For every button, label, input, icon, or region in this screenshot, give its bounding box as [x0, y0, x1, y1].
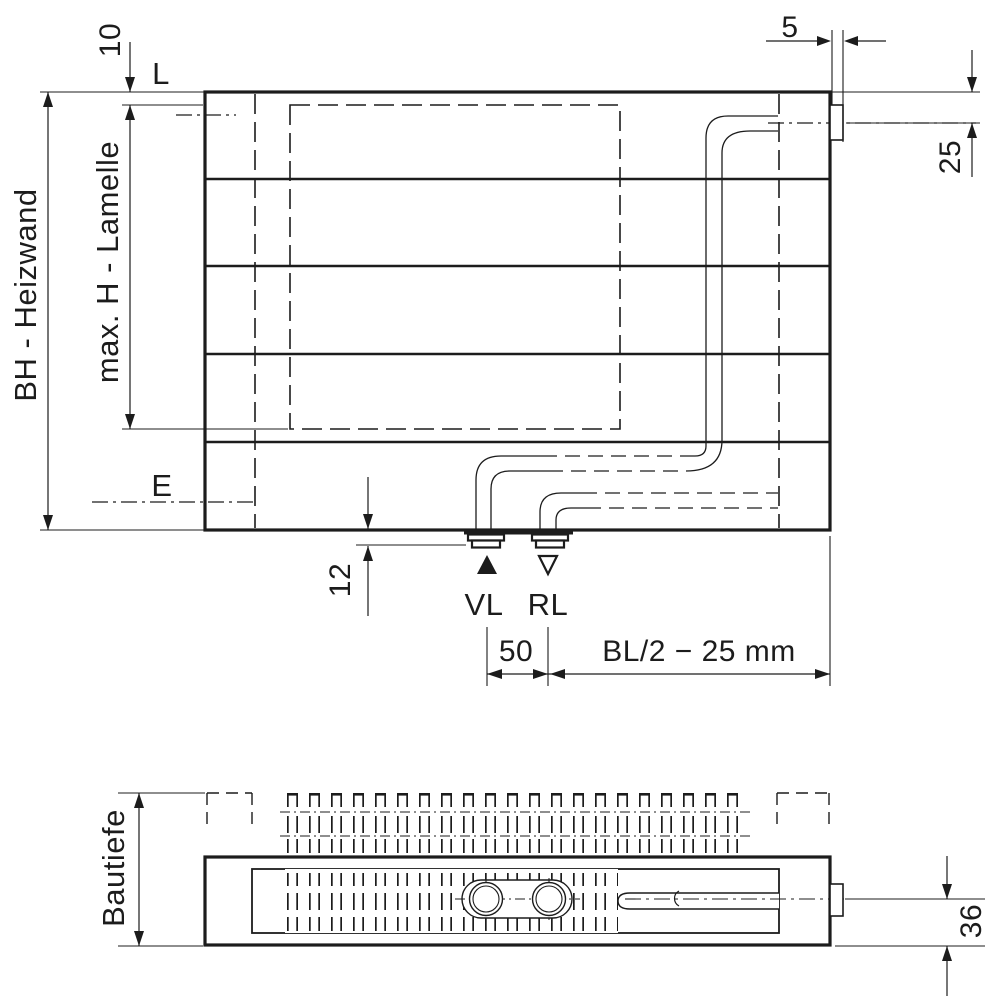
hanger-hidden-lines [255, 94, 779, 528]
dim-stub-protrusion [363, 477, 373, 616]
label-build-depth: Bautiefe [96, 809, 131, 927]
label-connection-position: BL/2 − 25 mm [602, 635, 796, 668]
label-connection-spacing: 50 [499, 635, 533, 668]
label-stub-protrusion: 12 [324, 563, 357, 597]
dim-connection-spacing [487, 669, 548, 679]
pipe-channel [618, 893, 779, 909]
radiator-band-lines [205, 179, 830, 442]
label-bottom-level: E [151, 468, 172, 503]
extension-lines [40, 92, 980, 686]
drawing-canvas: 10 L 5 25 BH - Heizwand max. H - Lamelle… [0, 0, 1000, 1000]
return-flow-marker [539, 556, 557, 574]
label-stub-width: 5 [781, 11, 798, 44]
dim-pipe-axis-offset [942, 856, 952, 996]
radiator-body-outline [205, 92, 830, 530]
return-pipe-lines [540, 493, 778, 530]
label-pipe-axis-offset: 36 [955, 904, 988, 938]
label-max-lamella-height: max. H - Lamelle [90, 141, 125, 383]
label-return: RL [528, 587, 569, 622]
radiator-technical-drawing: 10 L 5 25 BH - Heizwand max. H - Lamelle… [0, 0, 1000, 1000]
bottom-stubs [468, 535, 568, 548]
label-connection-offset: 25 [934, 140, 967, 174]
front-view [40, 30, 980, 686]
dim-connection-offset [967, 50, 977, 177]
dim-build-height [43, 92, 53, 530]
label-supply: VL [465, 587, 504, 622]
dim-build-depth [134, 793, 144, 946]
fin-comb [285, 793, 747, 856]
side-stub-plan [830, 884, 843, 916]
plan-view [118, 793, 985, 996]
dim-max-lamella [125, 105, 135, 429]
label-lamella-top-level: L [152, 56, 170, 91]
side-connection-stub [830, 105, 843, 140]
label-top-gap: 10 [94, 23, 127, 57]
level-centerlines [92, 115, 976, 502]
dim-connection-position [548, 669, 830, 679]
supply-flow-marker [477, 555, 497, 574]
label-build-height: BH - Heizwand [8, 188, 43, 401]
